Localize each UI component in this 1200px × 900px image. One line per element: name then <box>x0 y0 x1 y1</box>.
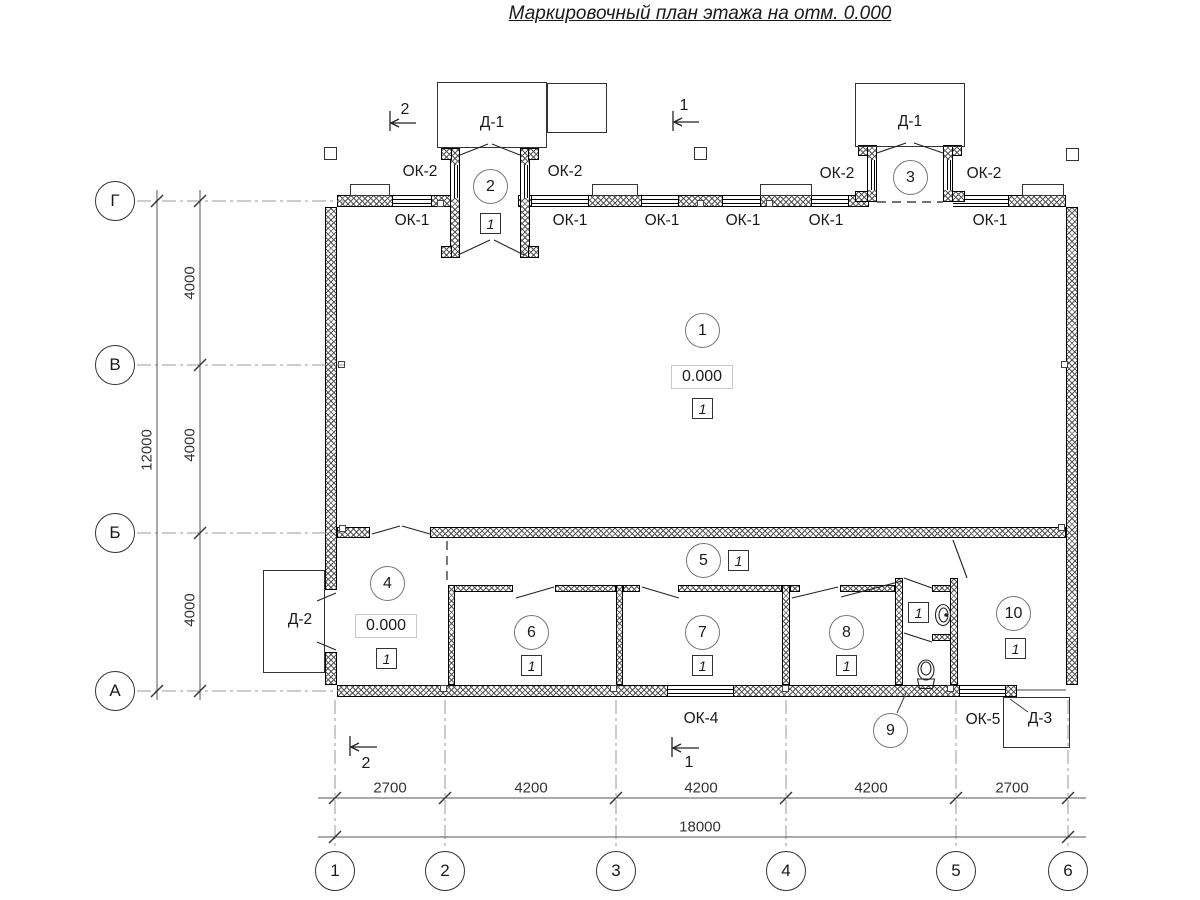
section-mark-1: 1 <box>685 754 694 772</box>
dim-v-3: 4000 <box>182 593 199 626</box>
floor-type-mark: 1 <box>728 550 749 571</box>
dim-h-1: 2700 <box>373 780 406 797</box>
door-label-d3: Д-3 <box>1028 710 1052 728</box>
room-number: 10 <box>1005 605 1023 623</box>
floor-type-mark: 1 <box>908 602 929 623</box>
axis-bubble-v: В <box>95 345 135 385</box>
room-number: 7 <box>698 624 707 642</box>
floor-type-mark: 1 <box>376 648 397 669</box>
window-label-ok4: ОК-4 <box>684 710 719 728</box>
room-number: 2 <box>486 178 495 196</box>
room-number: 8 <box>842 624 851 642</box>
axis-label: 2 <box>440 861 449 881</box>
door-label-d1: Д-1 <box>480 114 504 132</box>
door-label-d1: Д-1 <box>898 113 922 131</box>
window-label-ok1: ОК-1 <box>973 212 1008 230</box>
floor-type-mark: 1 <box>521 655 542 676</box>
floor-type-value: 1 <box>699 658 707 674</box>
window-label-ok2: ОК-2 <box>967 165 1002 183</box>
dim-h-2: 4200 <box>514 780 547 797</box>
axis-bubble-1: 1 <box>315 851 355 891</box>
floor-type-mark: 1 <box>692 398 713 419</box>
floor-type-mark: 1 <box>692 655 713 676</box>
dim-v-1: 4000 <box>182 266 199 299</box>
section-mark-2: 2 <box>362 755 371 773</box>
axis-label: 4 <box>781 861 790 881</box>
room-number: 9 <box>886 722 895 740</box>
section-mark-1: 1 <box>680 97 689 115</box>
floor-type-value: 1 <box>843 658 851 674</box>
axis-bubble-2: 2 <box>425 851 465 891</box>
room-circle-4: 4 <box>370 566 405 601</box>
room-number: 4 <box>383 575 392 593</box>
window-label-ok5: ОК-5 <box>966 711 1001 729</box>
window-label-ok1: ОК-1 <box>809 212 844 230</box>
axis-label: 6 <box>1063 861 1072 881</box>
door-label-d2: Д-2 <box>288 611 312 629</box>
window-label-ok2: ОК-2 <box>403 163 438 181</box>
window-label-ok2: ОК-2 <box>548 163 583 181</box>
floor-type-value: 1 <box>487 216 495 232</box>
floor-type-value: 1 <box>915 605 923 621</box>
window-label-ok1: ОК-1 <box>726 212 761 230</box>
floor-type-mark: 1 <box>1005 638 1026 659</box>
axis-label: А <box>109 681 120 701</box>
window-label-ok2: ОК-2 <box>820 165 855 183</box>
axis-label: 3 <box>611 861 620 881</box>
floor-type-value: 1 <box>735 553 743 569</box>
window-label-ok1: ОК-1 <box>553 212 588 230</box>
elevation-mark: 0.000 <box>355 614 417 638</box>
window-label-ok1: ОК-1 <box>395 212 430 230</box>
floor-type-value: 1 <box>528 658 536 674</box>
plan-linework <box>0 0 1200 900</box>
sink-icon <box>936 605 951 626</box>
room-circle-6: 6 <box>514 615 549 650</box>
window-label-ok1: ОК-1 <box>645 212 680 230</box>
axis-label: Г <box>110 191 119 211</box>
dim-h-5: 2700 <box>995 780 1028 797</box>
toilet-icon <box>918 660 935 689</box>
floor-type-value: 1 <box>1012 641 1020 657</box>
axis-bubble-g: Г <box>95 181 135 221</box>
room-circle-10: 10 <box>996 596 1031 631</box>
floor-type-value: 1 <box>699 401 707 417</box>
axis-bubble-a: А <box>95 671 135 711</box>
axis-label: В <box>109 355 120 375</box>
axis-label: 5 <box>951 861 960 881</box>
dim-h-4: 4200 <box>854 780 887 797</box>
axis-label: Б <box>109 523 120 543</box>
dim-h-total: 18000 <box>679 819 721 836</box>
elevation-mark: 0.000 <box>671 365 733 389</box>
room-circle-7: 7 <box>685 615 720 650</box>
floor-type-value: 1 <box>383 651 391 667</box>
room-number: 6 <box>527 624 536 642</box>
room-number: 3 <box>906 169 915 187</box>
axis-bubble-6: 6 <box>1048 851 1088 891</box>
dim-h-3: 4200 <box>684 780 717 797</box>
room-circle-2: 2 <box>473 169 508 204</box>
floor-plan-drawing: Маркировочный план этажа на отм. 0.000 <box>0 0 1200 900</box>
dimension-lines <box>157 190 1086 837</box>
axis-bubble-4: 4 <box>766 851 806 891</box>
section-mark-2: 2 <box>401 101 410 119</box>
dashed-boundaries <box>447 202 943 584</box>
room-circle-5: 5 <box>686 543 721 578</box>
room-number: 1 <box>698 322 707 340</box>
axis-label: 1 <box>330 861 339 881</box>
dimension-ticks <box>151 195 1074 843</box>
elevation-value: 0.000 <box>682 368 722 386</box>
axis-bubble-b: Б <box>95 513 135 553</box>
room-circle-8: 8 <box>829 615 864 650</box>
room-circle-1: 1 <box>685 313 720 348</box>
axis-bubble-3: 3 <box>596 851 636 891</box>
elevation-value: 0.000 <box>366 617 406 635</box>
axis-bubble-5: 5 <box>936 851 976 891</box>
dim-v-2: 4000 <box>182 428 199 461</box>
dim-v-total: 12000 <box>139 429 156 471</box>
room-circle-9: 9 <box>873 713 908 748</box>
room-circle-3: 3 <box>893 160 928 195</box>
floor-type-mark: 1 <box>836 655 857 676</box>
floor-type-mark: 1 <box>480 213 501 234</box>
room-number: 5 <box>699 552 708 570</box>
axis-lines <box>137 201 1068 849</box>
